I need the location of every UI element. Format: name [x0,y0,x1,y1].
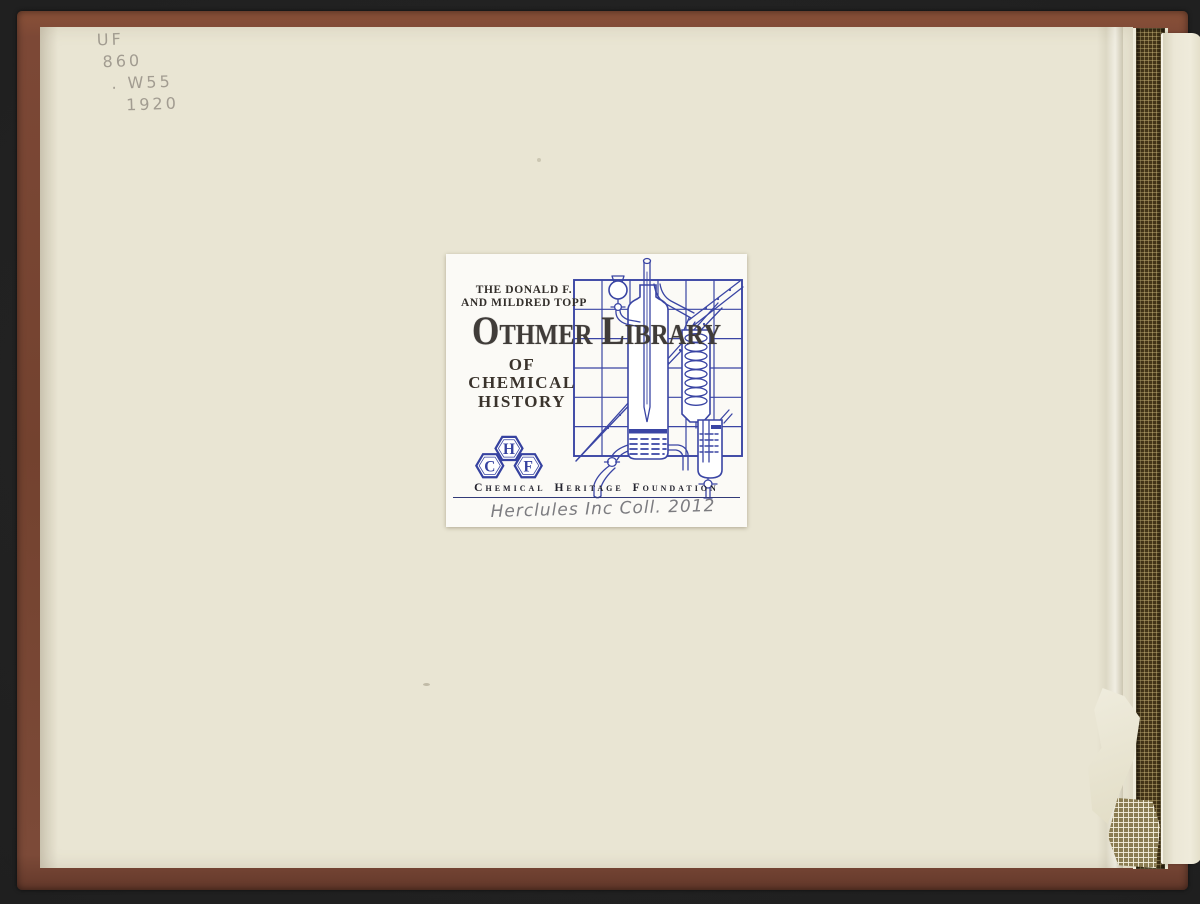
subtitle-history: HISTORY [446,392,598,412]
donor-line-1: THE DONALD F. [452,284,596,297]
logo-letter-f: F [524,459,533,476]
call-number-line: UF [96,27,176,52]
paper-speck [423,683,430,686]
bookplate-title: Othmer Library [464,311,729,351]
scanned-book-inside-cover: { "book": { "call_number_lines": ["UF", … [0,0,1200,904]
call-number-line: 860 [102,49,177,74]
binding-mesh-light [1108,798,1160,868]
organization-name: Chemical Heritage Foundation [450,482,743,494]
subtitle-of: OF [446,355,598,375]
flyleaf-edge [1161,33,1200,864]
library-bookplate: THE DONALD F. AND MILDRED TOPP Othmer Li… [446,254,747,527]
call-number-line: . W55 [111,71,178,95]
handwritten-accession-note: Herclules Inc Coll. 2012 [470,496,736,523]
donor-name: THE DONALD F. AND MILDRED TOPP [452,284,596,310]
chf-hexagon-logo: H C F [468,434,550,484]
subtitle-chemical: CHEMICAL [446,373,598,393]
paper-speck [537,158,541,162]
logo-letter-c: C [484,459,495,476]
pencil-call-number: UF 860 . W55 1920 [96,27,179,118]
transfer-tube [668,445,688,470]
logo-letter-h: H [503,441,515,458]
call-number-line: 1920 [126,93,179,117]
